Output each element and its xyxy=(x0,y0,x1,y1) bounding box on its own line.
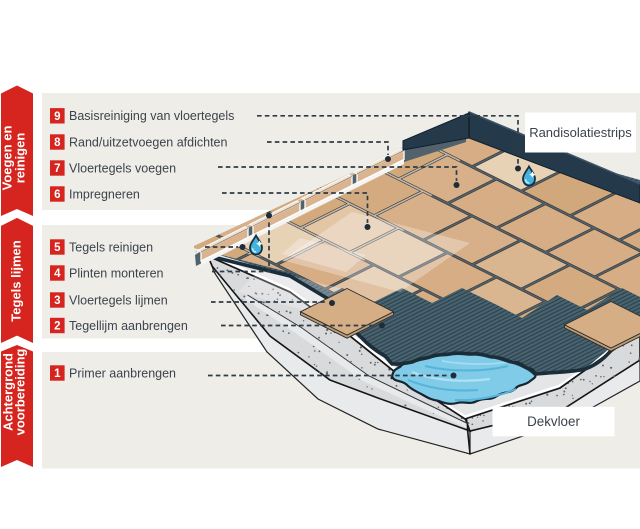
svg-text:Tegels lijmen: Tegels lijmen xyxy=(9,240,24,321)
svg-text:2: 2 xyxy=(54,321,60,333)
svg-text:Plinten monteren: Plinten monteren xyxy=(69,266,164,280)
svg-text:Primer aanbrengen: Primer aanbrengen xyxy=(69,366,176,380)
svg-text:1: 1 xyxy=(54,368,61,380)
svg-text:8: 8 xyxy=(54,137,61,149)
svg-text:Rand/uitzetvoegen afdichten: Rand/uitzetvoegen afdichten xyxy=(69,135,227,149)
svg-text:Randisolatiestrips: Randisolatiestrips xyxy=(529,125,632,140)
svg-text:3: 3 xyxy=(54,295,60,307)
svg-text:6: 6 xyxy=(54,189,60,201)
svg-text:Dekvloer: Dekvloer xyxy=(527,414,580,429)
svg-text:9: 9 xyxy=(54,111,60,123)
svg-text:Tegels reinigen: Tegels reinigen xyxy=(69,240,153,254)
svg-text:7: 7 xyxy=(54,163,60,175)
svg-text:voorbereiding: voorbereiding xyxy=(13,349,28,436)
svg-text:reinigen: reinigen xyxy=(13,133,28,184)
svg-text:Tegellijm aanbrengen: Tegellijm aanbrengen xyxy=(69,319,188,333)
svg-text:Vloertegels voegen: Vloertegels voegen xyxy=(69,161,176,175)
svg-text:4: 4 xyxy=(54,268,61,280)
svg-text:5: 5 xyxy=(54,242,61,254)
svg-text:Impregneren: Impregneren xyxy=(69,187,140,201)
svg-text:Vloertegels lijmen: Vloertegels lijmen xyxy=(69,293,168,307)
svg-text:Basisreiniging van vloertegels: Basisreiniging van vloertegels xyxy=(69,109,234,123)
